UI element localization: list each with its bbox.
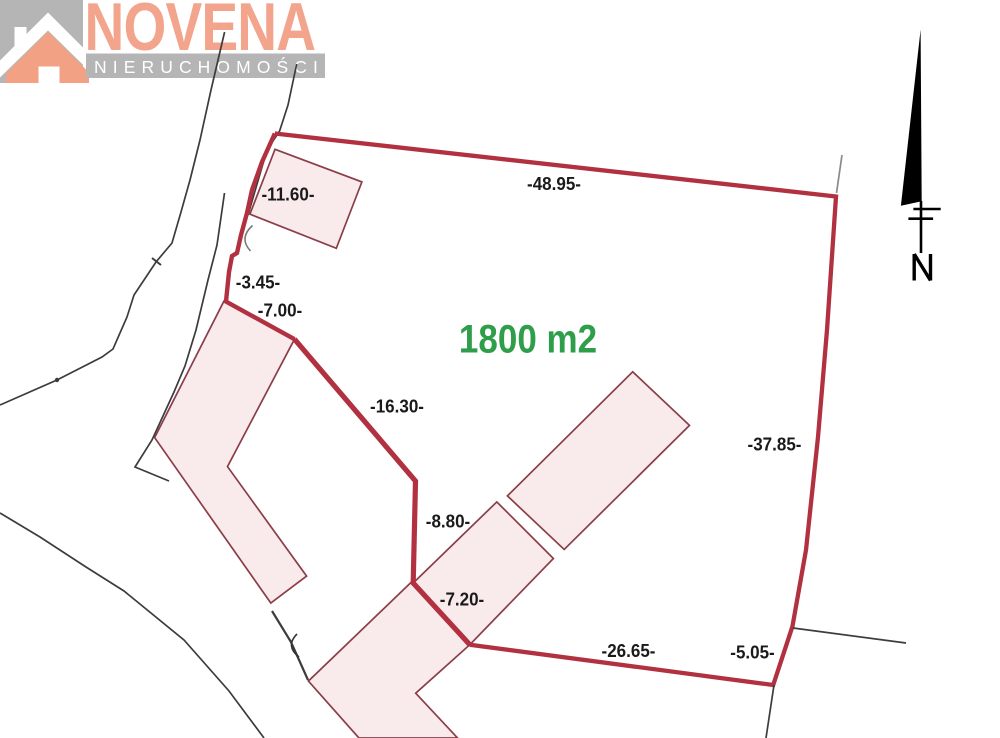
svg-text:-37.85-: -37.85- bbox=[748, 434, 802, 455]
svg-text:-7.20-: -7.20- bbox=[440, 589, 485, 610]
svg-text:-3.45-: -3.45- bbox=[236, 272, 281, 293]
svg-text:-16.30-: -16.30- bbox=[370, 396, 424, 417]
svg-text:1800 m2: 1800 m2 bbox=[459, 316, 597, 361]
svg-text:-8.80-: -8.80- bbox=[426, 511, 471, 532]
svg-text:NIERUCHOMOŚCI: NIERUCHOMOŚCI bbox=[94, 56, 324, 77]
svg-text:-48.95-: -48.95- bbox=[527, 173, 581, 194]
svg-text:-26.65-: -26.65- bbox=[602, 640, 656, 661]
svg-text:-5.05-: -5.05- bbox=[730, 642, 775, 663]
svg-text:-11.60-: -11.60- bbox=[262, 184, 315, 205]
svg-text:-7.00-: -7.00- bbox=[258, 300, 303, 321]
